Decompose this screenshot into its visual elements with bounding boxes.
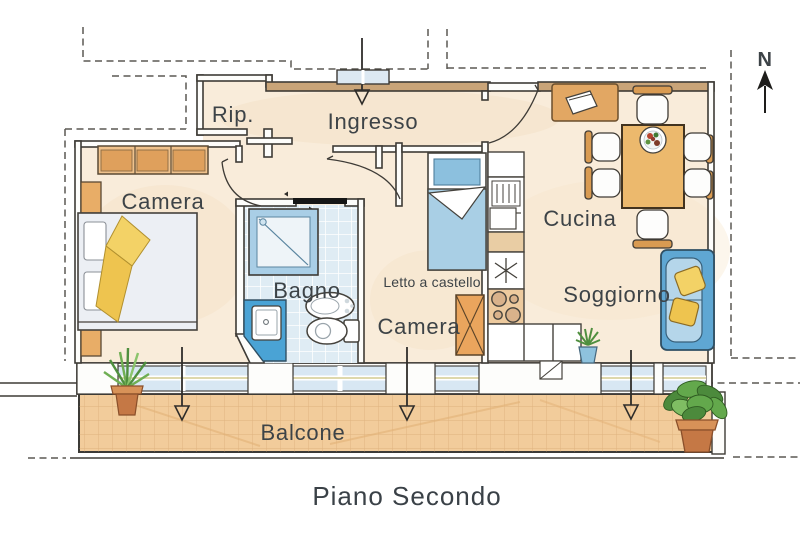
bunk-bed xyxy=(428,153,486,270)
label-soggiorno: Soggiorno xyxy=(563,282,671,307)
cabinet xyxy=(81,182,101,213)
double-bed xyxy=(78,213,197,330)
north-compass: N xyxy=(757,49,773,113)
toilet xyxy=(307,318,359,344)
label-cucina: Cucina xyxy=(543,206,616,231)
label-letto-a-castello: Letto a castello xyxy=(383,274,480,290)
shower xyxy=(249,209,318,275)
label-camera1: Camera xyxy=(121,189,204,214)
wardrobe xyxy=(98,146,208,174)
dining-table xyxy=(622,125,684,208)
desk xyxy=(552,84,618,121)
label-camera2: Camera xyxy=(377,314,460,339)
north-label: N xyxy=(758,49,773,71)
cabinet xyxy=(81,328,101,356)
floor-plan-drawing: N Rip. Ingresso Camera Bagno Letto a cas… xyxy=(0,0,800,533)
label-rip: Rip. xyxy=(212,102,254,127)
south-wall-windows xyxy=(77,363,712,394)
balcony xyxy=(70,392,725,458)
floor-plan-page: N Rip. Ingresso Camera Bagno Letto a cas… xyxy=(0,0,800,533)
neighbour-solid-wall-lines xyxy=(0,383,77,396)
entrance-door-panel xyxy=(337,70,389,84)
label-bagno: Bagno xyxy=(273,278,341,303)
page-title: Piano Secondo xyxy=(312,481,501,511)
label-balcone: Balcone xyxy=(260,420,345,445)
label-ingresso: Ingresso xyxy=(328,109,419,134)
